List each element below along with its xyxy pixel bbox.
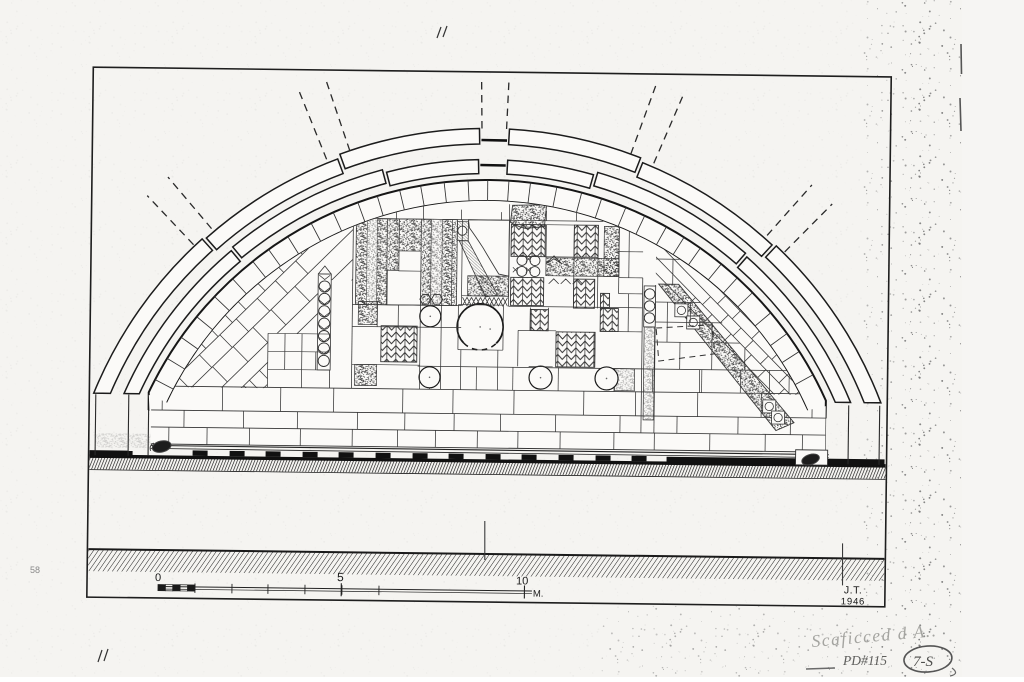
svg-text:J.T.: J.T. <box>844 584 862 596</box>
svg-text:5: 5 <box>337 570 344 584</box>
svg-text:10: 10 <box>516 575 528 587</box>
svg-text:M.: M. <box>533 589 544 600</box>
svg-text:7-S: 7-S <box>913 654 933 670</box>
svg-text:PD#115: PD#115 <box>842 653 887 668</box>
svg-text:0: 0 <box>155 572 161 584</box>
svg-text:1946: 1946 <box>841 596 865 607</box>
svg-text:58: 58 <box>30 565 40 575</box>
